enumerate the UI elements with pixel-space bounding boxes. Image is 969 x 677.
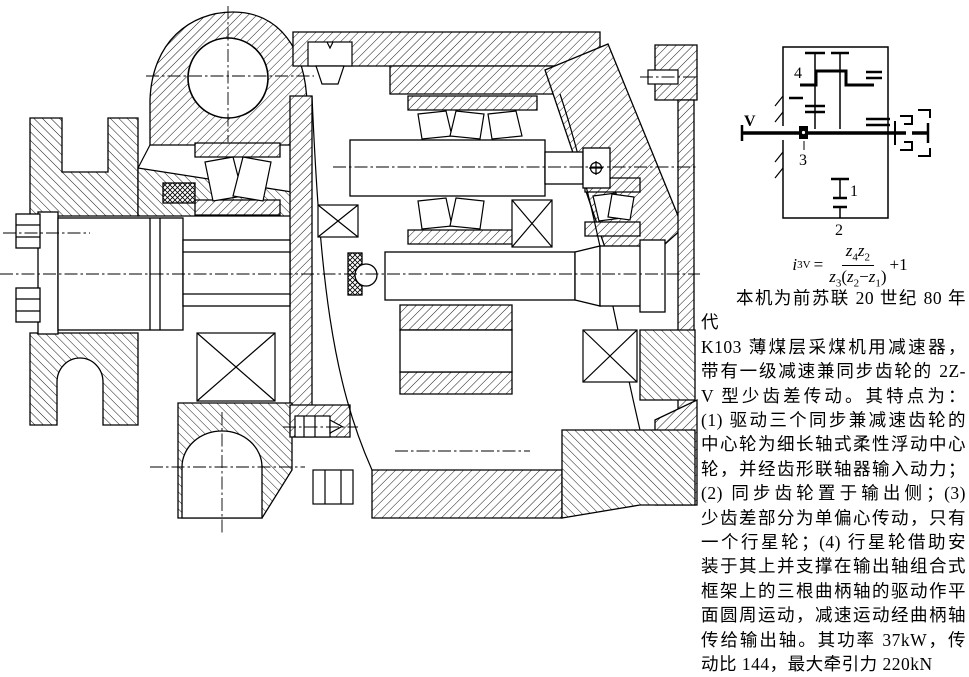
formula-tail: +1: [890, 255, 908, 275]
shaft-seal-box: [163, 183, 195, 203]
transmission-ratio-formula: i3V=z4z2z3(z2−z1)+1: [742, 244, 958, 286]
description-line: 本机为前苏联 20 世纪 80 年代: [701, 286, 966, 335]
gear1-symbol: [831, 179, 849, 198]
bearing-race-left-bottom: [195, 200, 280, 215]
description-line: 动比 144，最大牵引力 220kN: [701, 652, 966, 676]
mid-housing-wall: [290, 96, 312, 406]
description-line: V 型少齿差传动。其特点为：: [701, 384, 966, 408]
description-line: 少齿差部分为单偏心传动，只有: [701, 506, 966, 530]
gearbox-sectional-drawing: [0, 0, 700, 651]
diagram-label-2: 2: [835, 222, 843, 239]
input-fork-lower: [30, 333, 138, 425]
description-line: 一个行星轮；(4) 行星轮借助安: [701, 530, 966, 554]
bottom-right-mass: [562, 430, 695, 518]
description-line: 轮，并经齿形联轴器输入动力；: [701, 457, 966, 481]
cross-box-bearing: [318, 205, 358, 237]
left-chamber-gear: [183, 240, 290, 306]
diagram-label-3: 3: [799, 152, 807, 169]
description-line: (1) 驱动三个同步兼减速齿轮的: [701, 408, 966, 432]
roller: [450, 198, 484, 229]
description-line: (2) 同步齿轮置于输出侧；(3): [701, 481, 966, 505]
roller: [608, 194, 634, 220]
description-line: 框架上的三根曲柄轴的驱动作平: [701, 579, 966, 603]
input-fork-upper: [30, 118, 138, 216]
top-bolt-shank: [316, 66, 344, 84]
roller: [450, 111, 484, 139]
input-hub-flange: [38, 212, 58, 334]
eccentric-symbol: [799, 126, 808, 150]
output-shaft: [385, 252, 575, 300]
bearing-race-bell-bottom: [585, 222, 640, 236]
input-bolt-upper: [16, 214, 40, 248]
formula-numerator: z4z2: [842, 241, 874, 265]
formula-fraction: z4z2z3(z2−z1): [829, 241, 886, 289]
top-housing-band-step: [390, 66, 560, 94]
eccentric-roller: [355, 264, 377, 286]
description-line: 传给输出轴。其功率 37kW，传: [701, 628, 966, 652]
lower-gear-race-top: [400, 305, 512, 330]
roller: [488, 111, 522, 139]
bearing-race-left-top: [195, 143, 280, 157]
formula-lhs-subscript: 3V: [797, 260, 810, 271]
input-bolt-lower: [16, 288, 40, 322]
lower-gear-body: [400, 330, 512, 372]
roller: [418, 198, 452, 229]
upper-shaft-step: [545, 152, 583, 184]
lower-gear-race-bottom: [400, 372, 512, 394]
output-shaft-cone: [575, 246, 600, 306]
formula-equals: =: [814, 255, 824, 275]
diagram-label-4: 4: [794, 65, 802, 82]
planet-gear-symbol: [831, 53, 890, 129]
description-line: 中心轮为细长轴式柔性浮动中心: [701, 432, 966, 456]
diagram-label-v: V: [744, 113, 756, 130]
description-line: 面圆周运动，减速运动经曲柄轴: [701, 603, 966, 627]
description-line: 带有一级减速兼同步齿轮的 2Z-: [701, 359, 966, 383]
diagram-label-1: 1: [850, 183, 858, 200]
roller: [418, 111, 452, 139]
description-line: K103 薄煤层采煤机用减速器，: [701, 335, 966, 359]
cross-box-bearing: [197, 333, 275, 401]
top-bolt-head: [308, 42, 352, 66]
carrier-crank-symbol: [800, 71, 882, 85]
description-line: 装于其上并支撑在输出轴组合式: [701, 554, 966, 578]
bottom-bolt: [313, 470, 353, 504]
bearing-block-right: [640, 330, 695, 400]
bearing-race-central-top: [408, 96, 537, 110]
gear2-symbol: [833, 207, 847, 218]
book-figure-page: { "colors": { "ink": "#000000", "paper":…: [0, 0, 969, 651]
bottom-housing-band: [372, 470, 562, 518]
output-retainer: [640, 240, 665, 312]
cross-box-bearing: [512, 200, 552, 247]
upper-central-shaft: [350, 140, 545, 196]
kinematic-diagram: V 4 3 1 2: [728, 26, 969, 244]
description-paragraph: 本机为前苏联 20 世纪 80 年代 K103 薄煤层采煤机用减速器， 带有一级…: [701, 286, 966, 677]
cross-box-bearing: [583, 330, 637, 382]
